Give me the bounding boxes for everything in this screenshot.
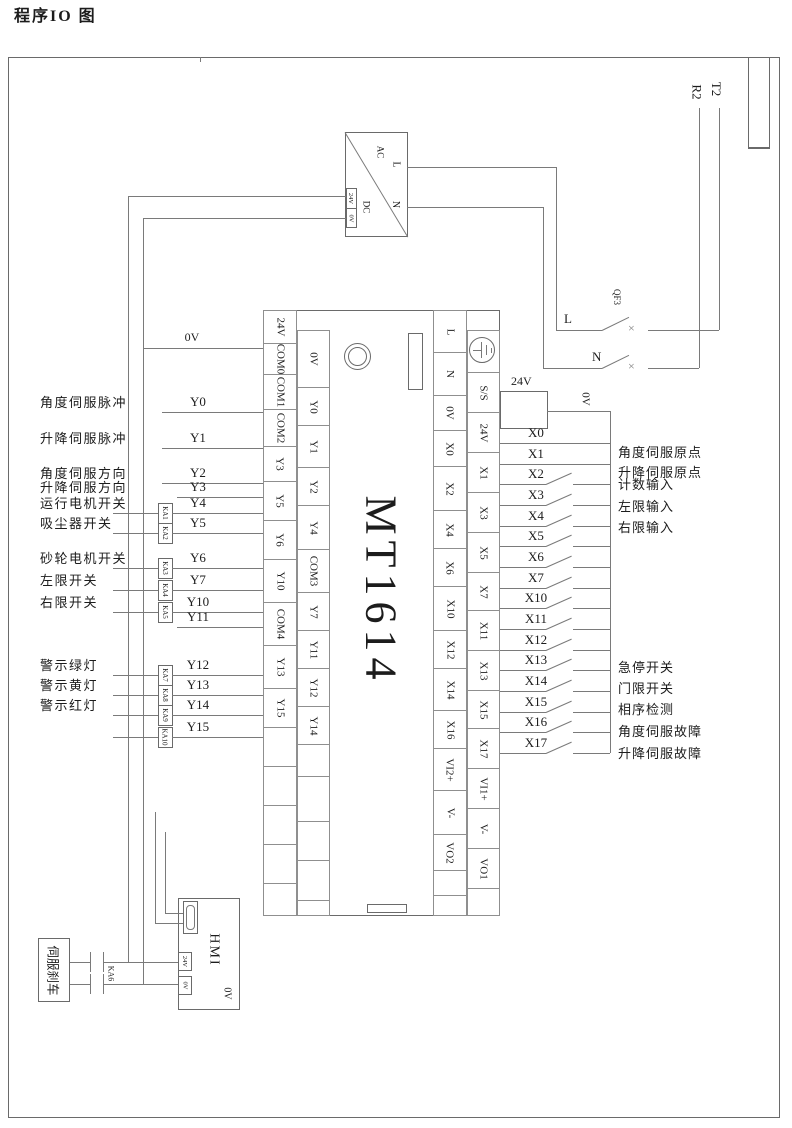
terminal-label: X16 — [444, 720, 456, 739]
label-Y3: Y3 — [172, 480, 224, 495]
terminal-label: X5 — [477, 546, 489, 559]
wire-24v-rail — [128, 196, 346, 197]
wire-X2 — [573, 484, 610, 485]
terminal-label: Y12 — [307, 678, 319, 697]
terminal-blank — [263, 844, 297, 884]
label-角度伺服故障: 角度伺服故障 — [618, 725, 702, 740]
terminal-label: X4 — [444, 523, 456, 536]
terminal-X16: X16 — [433, 710, 467, 749]
terminal-label: X10 — [444, 599, 456, 618]
ground-icon — [473, 350, 481, 351]
terminal-label: Y1 — [307, 440, 319, 453]
wire-n — [648, 368, 699, 369]
terminal-24V: 24V — [467, 412, 500, 453]
wire-t2 — [719, 108, 720, 330]
wire-0V — [143, 348, 263, 349]
relay-KA7-text: KA7 — [161, 668, 169, 682]
psu-0v-text: 0V — [347, 214, 354, 222]
hmi-com-wire — [155, 812, 156, 923]
wire-X11 — [500, 629, 546, 630]
wire-X16 — [573, 732, 610, 733]
terminal-label: VI2+ — [444, 758, 456, 781]
wire-X7 — [500, 588, 546, 589]
wire-X0 — [500, 443, 610, 444]
wire-X11 — [573, 629, 610, 630]
diagram-canvas: T2R2ACLNDC24V0VQF3LN××24VCOM0COM1COM2Y3Y… — [0, 0, 792, 1128]
psu-l: L — [336, 154, 456, 174]
hmi-corner-0v: 0V — [167, 983, 287, 1003]
terminal-blank — [467, 888, 500, 916]
label-计数输入: 计数输入 — [618, 478, 674, 493]
relay-KA6-text: KA6 — [107, 965, 116, 981]
terminal-label: COM4 — [274, 609, 286, 640]
ground-icon — [481, 342, 482, 358]
wire-X10 — [573, 608, 610, 609]
terminal-label: S/S — [477, 385, 489, 400]
wire-psu-l — [407, 167, 556, 168]
wire-n — [543, 368, 602, 369]
wire-brake — [104, 962, 178, 963]
breaker-qf3-text: QF3 — [612, 289, 622, 305]
terminal-label: COM2 — [274, 413, 286, 444]
terminal-Y2: Y2 — [297, 467, 330, 506]
label-警示红灯: 警示红灯 — [40, 699, 98, 714]
terminal-Y13: Y13 — [263, 645, 297, 689]
terminal-label: Y5 — [274, 494, 286, 507]
terminal-X6: X6 — [433, 548, 467, 587]
terminal-N: N — [433, 352, 467, 396]
wire-24v-rail — [128, 196, 129, 962]
label-右限输入: 右限输入 — [618, 521, 674, 536]
terminal-label: Y4 — [307, 521, 319, 534]
mains-r2-text: R2 — [689, 84, 705, 99]
label-升降伺服故障: 升降伺服故障 — [618, 747, 702, 762]
wire-Y4 — [172, 513, 263, 514]
wire-X4 — [573, 526, 610, 527]
label-breaker-l: L — [564, 312, 572, 327]
terminal-label: X0 — [444, 442, 456, 455]
label-X1: X1 — [512, 447, 560, 462]
label-左限开关: 左限开关 — [40, 574, 98, 589]
terminal-COM0: COM0 — [263, 343, 297, 375]
wire-Y1 — [162, 448, 263, 449]
terminal-Y1: Y1 — [297, 425, 330, 468]
wire-X4 — [500, 526, 546, 527]
wire-X5 — [500, 546, 546, 547]
terminal-label: X12 — [444, 640, 456, 659]
hmi-com-wire — [165, 913, 183, 914]
label-X0: X0 — [512, 426, 560, 441]
relay-KA6: KA6 — [51, 963, 171, 983]
terminal-X3: X3 — [467, 492, 500, 533]
mains-r2: R2 — [637, 82, 757, 102]
label-右限开关: 右限开关 — [40, 596, 98, 611]
relay-KA1-text: KA1 — [161, 506, 169, 520]
relay-KA5-text: KA5 — [161, 605, 169, 619]
terminal-Y6: Y6 — [263, 520, 297, 560]
breaker-contact-icon: × — [628, 322, 635, 336]
terminal-X5: X5 — [467, 532, 500, 573]
terminal-blank — [263, 883, 297, 916]
label-0v-rail: 0V — [172, 331, 212, 345]
terminal-0V: 0V — [297, 330, 330, 388]
terminal-label: COM1 — [274, 377, 286, 408]
terminal-label: X3 — [477, 506, 489, 519]
wire-X17 — [500, 753, 546, 754]
relay-KA8-text: KA8 — [161, 688, 169, 702]
terminal-label: Y6 — [274, 533, 286, 546]
terminal-label: COM0 — [274, 344, 286, 375]
terminal-blank — [433, 870, 467, 896]
wire-X16 — [500, 732, 546, 733]
terminal-X4: X4 — [433, 510, 467, 549]
terminal-X17: X17 — [467, 728, 500, 769]
wire-Y11 — [177, 627, 263, 628]
terminal-X1: X1 — [467, 452, 500, 493]
terminal-V-: V- — [433, 790, 467, 835]
terminal-label: X7 — [477, 585, 489, 598]
terminal-blank — [297, 860, 330, 901]
terminal-VI2+: VI2+ — [433, 748, 467, 791]
terminal-blank — [433, 895, 467, 916]
input-common-rail — [610, 411, 611, 753]
terminal-blank — [263, 766, 297, 806]
plc-slot — [408, 333, 423, 390]
terminal-label: VO1 — [477, 858, 489, 879]
terminal-blank — [297, 744, 330, 777]
terminal-label: Y0 — [307, 400, 319, 413]
terminal-label: X14 — [444, 680, 456, 699]
label-门限开关: 门限开关 — [618, 682, 674, 697]
terminal-label: VI1+ — [478, 777, 490, 800]
terminal-blank — [297, 776, 330, 822]
terminal-Y11: Y11 — [297, 630, 330, 669]
terminal-label: COM3 — [308, 556, 320, 587]
wire-X13 — [500, 670, 546, 671]
hmi-com-wire — [165, 832, 166, 913]
terminal-L: L — [433, 310, 467, 353]
label-Y0: Y0 — [172, 395, 224, 410]
mounting-hole-icon — [348, 347, 367, 366]
wire-l — [648, 330, 719, 331]
terminal-label: Y3 — [274, 457, 286, 470]
terminal-label: 0V — [307, 352, 319, 365]
terminal-label: V- — [444, 807, 456, 818]
wire-X1 — [500, 464, 610, 465]
terminal-0V: 0V — [433, 395, 467, 431]
label-角度伺服脉冲: 角度伺服脉冲 — [40, 396, 127, 411]
terminal-Y4: Y4 — [297, 505, 330, 550]
terminal-blank — [297, 900, 330, 916]
wire-X13 — [573, 670, 610, 671]
terminal-label: V- — [477, 823, 489, 834]
relay-KA2-text: KA2 — [161, 526, 169, 540]
terminal-VO1: VO1 — [467, 848, 500, 889]
terminal-blank — [263, 805, 297, 845]
ground-icon — [486, 345, 487, 355]
label-Y1: Y1 — [172, 431, 224, 446]
relay-KA10-text: KA10 — [161, 728, 169, 745]
wire-X10 — [500, 608, 546, 609]
wire-brake — [70, 984, 90, 985]
terminal-label: VO2 — [444, 842, 456, 863]
psu-l-text: L — [390, 161, 401, 167]
terminal-X7: X7 — [467, 572, 500, 611]
terminal-label: Y13 — [274, 658, 286, 677]
wire-0v-rail — [143, 218, 346, 219]
relay-KA3-text: KA3 — [161, 561, 169, 575]
ground-icon — [491, 348, 492, 353]
terminal-label: Y2 — [307, 480, 319, 493]
relay-KA9-text: KA9 — [161, 708, 169, 722]
label-角度伺服原点: 角度伺服原点 — [618, 446, 702, 461]
terminal-Y14: Y14 — [297, 706, 330, 745]
wire-X12 — [573, 650, 610, 651]
terminal-X2: X2 — [433, 466, 467, 511]
terminal-24V: 24V — [263, 310, 297, 344]
terminal-COM1: COM1 — [263, 374, 297, 410]
plc-model: MT1614 — [336, 445, 426, 735]
label-24v-supply: 24V — [511, 375, 532, 389]
terminal-label: Y14 — [307, 716, 319, 735]
wire-24v-box — [547, 411, 610, 412]
terminal-label: X17 — [477, 739, 489, 758]
wire-Y0 — [162, 412, 263, 413]
terminal-X12: X12 — [433, 630, 467, 669]
terminal-Y10: Y10 — [263, 559, 297, 603]
wire-X3 — [573, 505, 610, 506]
wire-X12 — [500, 650, 546, 651]
terminal-label: Y11 — [307, 640, 319, 659]
wire-brake — [104, 984, 178, 985]
wire-Y5 — [172, 533, 263, 534]
hmi-connector-pins-icon — [186, 905, 195, 930]
terminal-X10: X10 — [433, 586, 467, 631]
terminal-blank — [297, 821, 330, 861]
wire-Y14 — [172, 715, 263, 716]
terminal-Y0: Y0 — [297, 387, 330, 426]
wire-Y13 — [172, 695, 263, 696]
wire-X15 — [500, 712, 546, 713]
terminal-label: L — [444, 328, 456, 335]
label-升降伺服脉冲: 升降伺服脉冲 — [40, 432, 127, 447]
wire-X2 — [500, 484, 546, 485]
wire-r2 — [699, 108, 700, 368]
label-breaker-n: N — [592, 350, 601, 365]
wire-X14 — [573, 691, 610, 692]
psu-24v: 24V — [291, 188, 411, 208]
wire-X7 — [573, 588, 610, 589]
wire-psu-n — [407, 207, 543, 208]
wire-Y7 — [172, 590, 263, 591]
terminal-VO2: VO2 — [433, 834, 467, 871]
terminal-X13: X13 — [467, 650, 500, 691]
terminal-V-: V- — [467, 808, 500, 849]
label-相序检测: 相序检测 — [618, 703, 674, 718]
terminal-label: Y10 — [274, 572, 286, 591]
terminal-S/S: S/S — [467, 372, 500, 413]
terminal-X15: X15 — [467, 690, 500, 729]
label-急停开关: 急停开关 — [618, 661, 674, 676]
wire-Y12 — [172, 675, 263, 676]
terminal-label: X15 — [477, 700, 489, 719]
terminal-X11: X11 — [467, 610, 500, 651]
wire-0v-rail — [143, 218, 144, 984]
hmi-com-wire — [155, 923, 183, 924]
wire-X17 — [573, 753, 610, 754]
label-警示绿灯: 警示绿灯 — [40, 659, 98, 674]
label-Y11: Y11 — [172, 610, 224, 625]
hmi-24v-text: 24V — [181, 955, 188, 966]
schematic-page: { "title": {"text": "程序IO 图"}, "mains": … — [0, 0, 792, 1128]
wire-X14 — [500, 691, 546, 692]
label-吸尘器开关: 吸尘器开关 — [40, 517, 113, 532]
label-0v-vertical: 0V — [526, 389, 646, 409]
terminal-label: 24V — [477, 423, 489, 442]
terminal-COM3: COM3 — [297, 549, 330, 593]
terminal-label: N — [444, 370, 456, 378]
terminal-COM4: COM4 — [263, 602, 297, 646]
wire-X15 — [573, 712, 610, 713]
hmi-corner-0v-text: 0V — [221, 987, 232, 999]
wire-X6 — [573, 567, 610, 568]
plc-slot — [367, 904, 407, 913]
terminal-Y7: Y7 — [297, 592, 330, 631]
terminal-Y3: Y3 — [263, 446, 297, 482]
label-左限输入: 左限输入 — [618, 500, 674, 515]
wire-X3 — [500, 505, 546, 506]
breaker-contact-icon: × — [628, 360, 635, 374]
terminal-VI1+: VI1+ — [467, 768, 500, 809]
plc-model-text: MT1614 — [356, 495, 407, 685]
terminal-Y15: Y15 — [263, 688, 297, 728]
wire-Y6 — [172, 568, 263, 569]
wire-psu-n — [543, 207, 544, 368]
terminal-X14: X14 — [433, 668, 467, 711]
terminal-label: 24V — [274, 318, 286, 337]
terminal-label: X13 — [477, 661, 489, 680]
terminal-label: X11 — [477, 621, 489, 640]
terminal-label: Y7 — [307, 605, 319, 618]
label-升降伺服方向: 升降伺服方向 — [40, 481, 127, 496]
terminal-blank — [263, 727, 297, 767]
breaker-blade-icon — [602, 355, 629, 369]
wire-l — [556, 330, 602, 331]
terminal-Y5: Y5 — [263, 481, 297, 521]
breaker-blade-icon — [602, 317, 629, 331]
terminal-label: X6 — [444, 561, 456, 574]
terminal-X0: X0 — [433, 430, 467, 467]
label-警示黄灯: 警示黄灯 — [40, 679, 98, 694]
relay-KA4-text: KA4 — [161, 583, 169, 597]
terminal-label: X2 — [444, 482, 456, 495]
wire-X6 — [500, 567, 546, 568]
wire-X5 — [573, 546, 610, 547]
psu-24v-text: 24V — [347, 192, 354, 203]
terminal-label: X1 — [477, 466, 489, 479]
wire-Y15 — [172, 737, 263, 738]
terminal-label: 0V — [444, 406, 456, 419]
terminal-COM2: COM2 — [263, 409, 297, 447]
terminal-Y12: Y12 — [297, 668, 330, 707]
label-0v-vertical-text: 0V — [580, 392, 592, 405]
terminal-label: Y15 — [274, 699, 286, 718]
breaker-qf3: QF3 — [557, 287, 677, 307]
